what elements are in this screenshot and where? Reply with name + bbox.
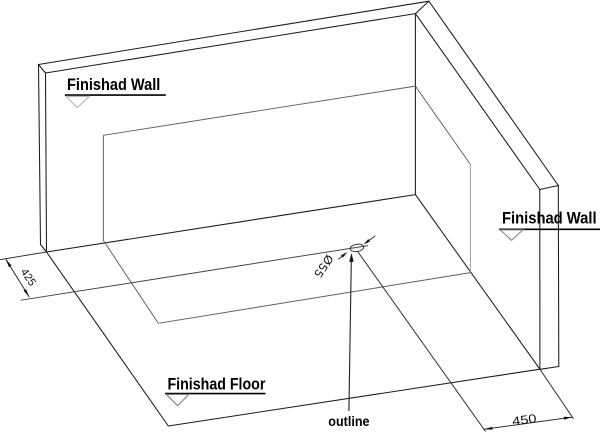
svg-text:outline: outline <box>328 414 369 429</box>
svg-text:Finishad Floor: Finishad Floor <box>168 374 266 393</box>
svg-text:Finishad Wall: Finishad Wall <box>67 75 160 94</box>
svg-text:Finishad Wall: Finishad Wall <box>502 208 597 227</box>
